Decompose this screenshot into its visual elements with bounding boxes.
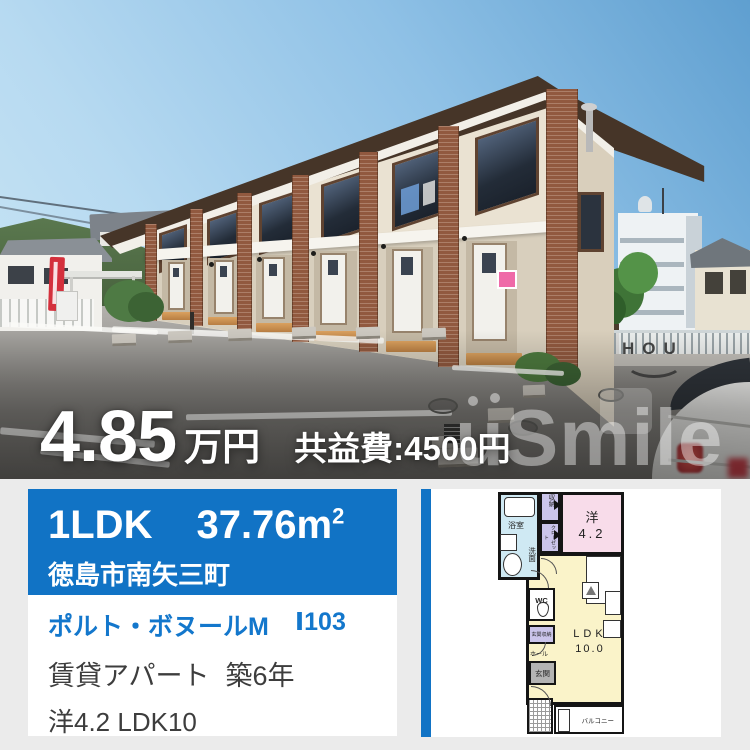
kitchen-sink [605, 591, 621, 615]
age-label: 築6年 [225, 654, 294, 693]
price-unit: 万円 [184, 429, 260, 469]
location-label: 徳島市南矢三町 [48, 555, 397, 592]
category-label: 賃貸アパート [48, 654, 209, 693]
bath-label: 浴室 [508, 521, 524, 530]
layout-label: 1LDK [48, 503, 152, 548]
price-value: 4.85 [40, 406, 176, 469]
western-label: 洋 [585, 507, 598, 526]
balcony: バルコニー [554, 705, 624, 734]
stove-symbol [586, 586, 596, 595]
unit-number[interactable]: Ⅰ103 [295, 607, 346, 643]
info-card-body: ポルト・ボヌールM Ⅰ103 賃貸アパート 築6年 洋4.2 LDK10 [48, 607, 378, 739]
floorplan-drawing: 浴室 洗面 収納 クローゼット 洋 4.2 WC 玄関収納 [498, 492, 624, 734]
accent-bar [421, 489, 431, 737]
balcony-label: バルコニー [582, 715, 614, 725]
bathtub [504, 497, 535, 517]
floorplan-card[interactable]: 浴室 洗面 収納 クローゼット 洋 4.2 WC 玄関収納 [421, 489, 721, 737]
wash-label: 洗面 [527, 547, 536, 562]
rooms-label: 洋4.2 LDK10 [48, 702, 378, 739]
toilet [537, 602, 549, 617]
property-name-row: ポルト・ボヌールM Ⅰ103 [48, 607, 378, 643]
basin [503, 553, 522, 576]
western-size: 4.2 [578, 526, 605, 541]
washer-space [500, 534, 517, 551]
room-bath: 浴室 洗面 [498, 492, 540, 580]
listing-info-card[interactable]: 1LDK 37.76m2 徳島市南矢三町 ポルト・ボヌールM Ⅰ103 賃貸アパ… [28, 489, 397, 736]
area-label: 37.76m2 [196, 503, 344, 548]
info-card-header: 1LDK 37.76m2 徳島市南矢三町 [28, 489, 397, 595]
entrance-label: 玄関 [535, 668, 550, 679]
property-name-link[interactable]: ポルト・ボヌールM [48, 607, 269, 643]
area-sup: 2 [332, 504, 344, 529]
balcony-window [558, 709, 570, 732]
listing-page: { "photo": { "price": { "value": "4.85",… [0, 0, 750, 750]
room-entrance: 玄関 [529, 661, 556, 685]
door-notch [554, 530, 561, 540]
stove [582, 582, 599, 599]
room-western: 洋 4.2 [560, 492, 624, 555]
door-notch [554, 500, 561, 510]
price-overlay: 4.85 万円 共益費:4500円 [40, 406, 511, 469]
watermark-smile-arc [625, 348, 683, 378]
hall-label: ホール [530, 652, 548, 659]
property-photo: uSmile HOU 4.85 万円 共益費:4500円 [0, 0, 750, 479]
price-fee: 共益費:4500円 [294, 432, 510, 469]
entrance-storage-label: 玄関収納 [531, 631, 551, 638]
ldk-label: LDK 10.0 [556, 628, 624, 655]
room-wc: WC [528, 588, 555, 621]
